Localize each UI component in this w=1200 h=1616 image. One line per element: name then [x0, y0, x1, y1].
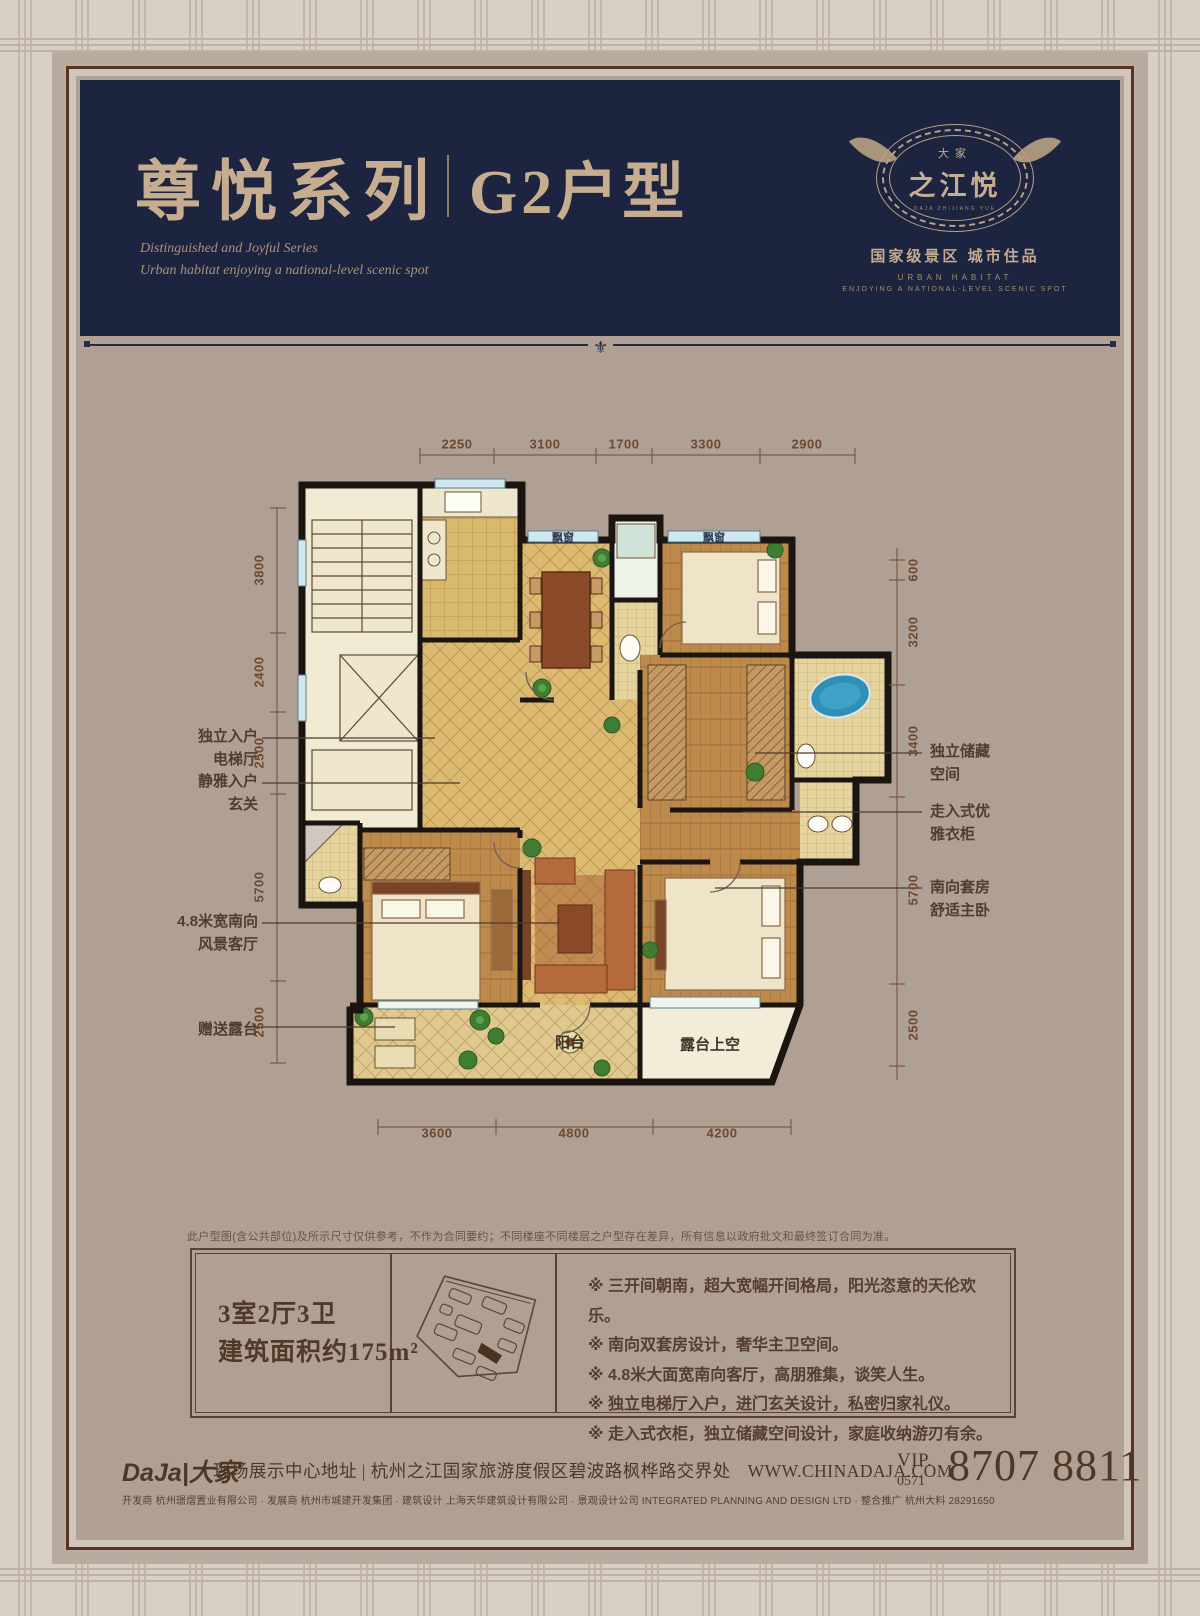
dims-top-label: 2250: [442, 437, 473, 452]
feature-item: ※ 独立电梯厅入户，进门玄关设计，私密归家礼仪。: [588, 1390, 998, 1420]
callout-living-room: 4.8米宽南向 风景客厅: [155, 910, 258, 956]
spec-area: 建筑面积约175m²: [218, 1334, 419, 1372]
dims-left-label: 2400: [252, 657, 267, 688]
balcony-label: 阳台: [555, 1032, 585, 1053]
feature-item: ※ 三开间朝南，超大宽幅开间格局，阳光恣意的天伦欢乐。: [588, 1272, 998, 1331]
disclaimer-text: 此户型图(含公共部位)及所示尺寸仅供参考，不作为合同要约；不同楼座不同楼层之户型…: [187, 1228, 896, 1244]
title-row: 尊悦系列 G2户型: [135, 138, 688, 234]
feature-list: ※ 三开间朝南，超大宽幅开间格局，阳光恣意的天伦欢乐。※ 南向双套房设计，奢华主…: [588, 1272, 998, 1449]
subtitle-en: Distinguished and Joyful Series Urban ha…: [140, 238, 429, 282]
dims-left-label: 3800: [252, 555, 267, 586]
vip-phone-number: 8707 8811: [948, 1440, 1142, 1491]
dims-top-label: 3300: [691, 437, 722, 452]
vip-block: VIP. 0571: [897, 1450, 932, 1490]
info-box: 3室2厅3卫 建筑面积约175m²: [190, 1248, 1016, 1418]
callout-foyer: 静雅入户 玄关: [155, 770, 258, 816]
wallpaper-hline-top: [0, 38, 1200, 52]
brand-emblem: 大家 之江悦 DAJA ZHIJIANG YUE: [870, 118, 1040, 238]
dims-top-label: 2900: [792, 437, 823, 452]
feature-item: ※ 走入式衣柜，独立储藏空间设计，家庭收纳游刃有余。: [588, 1420, 998, 1450]
dims-bottom-label: 4200: [707, 1126, 738, 1141]
emblem-text: 大家 之江悦 DAJA ZHIJIANG YUE: [870, 118, 1040, 238]
brand-sub: DAJA ZHIJIANG YUE: [914, 206, 996, 212]
bay-window-label-2: 飘窗: [703, 529, 725, 545]
dims-right-label: 2500: [906, 1010, 921, 1041]
tagline-en-1: URBAN HABITAT: [800, 273, 1110, 282]
info-box-inner-border: 3室2厅3卫 建筑面积约175m²: [195, 1253, 1011, 1413]
subtitle-line-1: Distinguished and Joyful Series: [140, 238, 429, 260]
callout-gift-terrace: 赠送露台: [155, 1018, 258, 1041]
callout-master-suite: 南向套房 舒适主卧: [930, 876, 1040, 922]
dims-left-label: 5700: [252, 872, 267, 903]
feature-item: ※ 4.8米大面宽南向客厅，高朋雅集，谈笑人生。: [588, 1361, 998, 1391]
wallpaper-hline-bottom: [0, 1568, 1200, 1582]
dims-right-label: 3200: [906, 617, 921, 648]
living-room-set: [522, 858, 635, 993]
brand-small: 大家: [938, 145, 972, 161]
divider-end-dot: [1110, 341, 1116, 347]
series-title: 尊悦系列: [135, 138, 439, 234]
tagline-en-2: ENJOYING A NATIONAL-LEVEL SCENIC SPOT: [800, 286, 1110, 293]
brand-tagline: 国家级景区 城市住品 URBAN HABITAT ENJOYING A NATI…: [800, 245, 1110, 293]
credits-line: 开发商 杭州璟熠置业有限公司 · 发展商 杭州市城建开发集团 · 建筑设计 上海…: [122, 1492, 995, 1507]
unit-type-title: G2户型: [469, 141, 688, 231]
feature-item: ※ 南向双套房设计，奢华主卫空间。: [588, 1331, 998, 1361]
brand-main: 之江悦: [909, 164, 1002, 203]
bay-window-label-1: 飘窗: [552, 529, 574, 545]
subtitle-line-2: Urban habitat enjoying a national-level …: [140, 260, 429, 282]
terrace-label: 露台上空: [680, 1034, 740, 1055]
dims-right-label: 600: [906, 558, 921, 581]
key-plan-diagram: [401, 1262, 551, 1402]
showroom-address: 现场展示中心地址 | 杭州之江国家旅游度假区碧波路枫桦路交界处: [213, 1461, 731, 1481]
title-separator: [447, 155, 449, 217]
dims-bottom-label: 4800: [559, 1126, 590, 1141]
divider-end-dot: [84, 341, 90, 347]
unit-specs: 3室2厅3卫 建筑面积约175m²: [218, 1296, 419, 1372]
callout-storage: 独立储藏 空间: [930, 740, 1040, 786]
info-column-divider: [555, 1254, 557, 1412]
spec-rooms: 3室2厅3卫: [218, 1296, 419, 1334]
dims-right-label: 5700: [906, 875, 921, 906]
vip-area-code: 0571: [897, 1474, 932, 1490]
dims-top-label: 3100: [530, 437, 561, 452]
tagline-cn: 国家级景区 城市住品: [800, 245, 1110, 266]
fleur-ornament-icon: ⚜: [588, 338, 613, 358]
header-panel: 尊悦系列 G2户型 Distinguished and Joyful Serie…: [80, 80, 1120, 336]
vip-label: VIP.: [897, 1450, 932, 1472]
footer-address-row: 现场展示中心地址 | 杭州之江国家旅游度假区碧波路枫桦路交界处 WWW.CHIN…: [213, 1458, 953, 1483]
dims-right-label: 3400: [906, 726, 921, 757]
dining-table: [530, 572, 602, 668]
callout-walkin-closet: 走入式优 雅衣柜: [930, 800, 1040, 846]
dims-bottom-label: 3600: [422, 1126, 453, 1141]
callout-elevator-hall: 独立入户 电梯厅: [155, 725, 258, 771]
dims-top-label: 1700: [609, 437, 640, 452]
